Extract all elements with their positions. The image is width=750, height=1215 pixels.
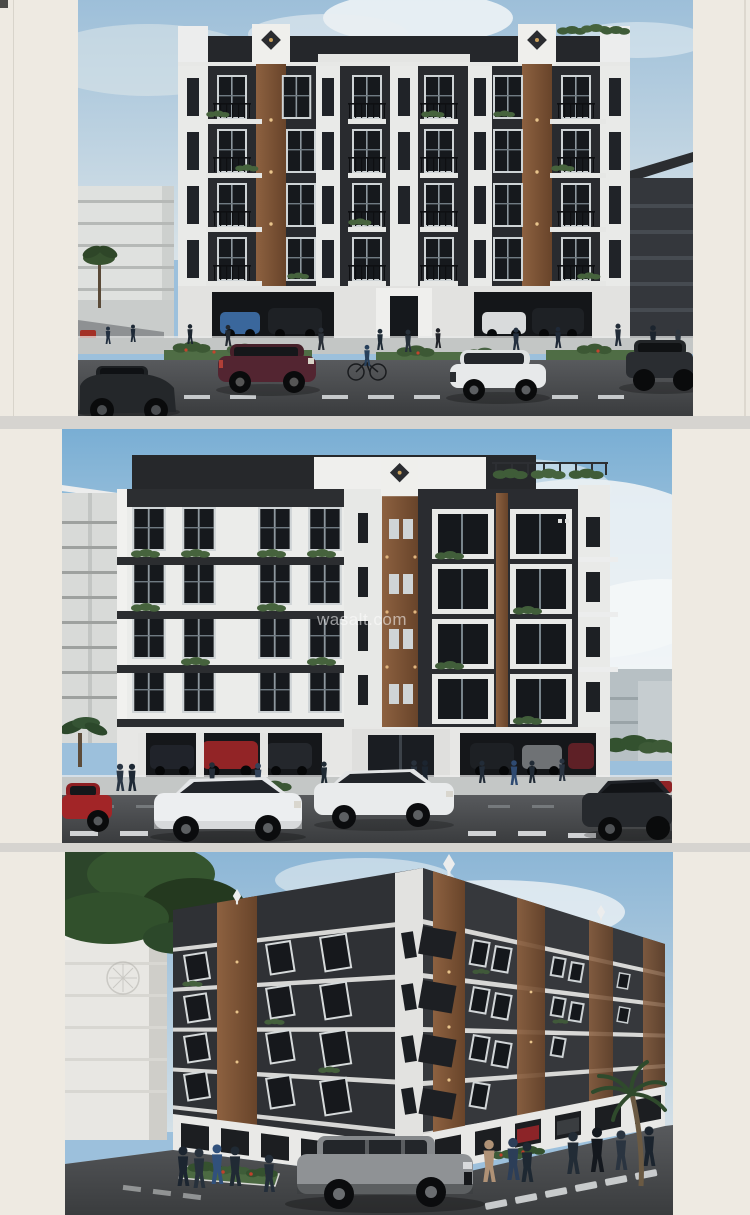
diamond-logo-icon: [381, 457, 418, 496]
scan-speck: [0, 0, 8, 8]
watermark: wasalt.com: [316, 610, 407, 629]
diamond-logo-icon: [252, 24, 290, 64]
background-building-left: [62, 485, 118, 767]
background-building-left: [78, 186, 174, 338]
diamond-logo-icon: [518, 24, 556, 64]
wood-column: [256, 34, 286, 286]
car-white-suv: [446, 350, 550, 404]
panel-separator: [0, 843, 750, 852]
listing-photo-corner-perspective: [65, 852, 673, 1215]
right-wing: [418, 485, 618, 731]
scan-edge-line-left: [13, 0, 14, 416]
left-wing: [117, 489, 347, 729]
background-buildings-right: [604, 669, 672, 761]
side-elevation-render: wasalt.com: [62, 429, 672, 843]
emblem-watermark: [107, 962, 139, 994]
scan-edge-line-right: [744, 0, 746, 416]
main-building: [178, 24, 630, 346]
wood-column: [522, 34, 552, 286]
listing-photo-front-elevation: [78, 0, 693, 416]
wood-column: [517, 898, 545, 1134]
center-tower: [344, 457, 418, 731]
background-building-white: [65, 930, 167, 1140]
corner-perspective-render: [65, 852, 673, 1215]
background-building-right: [626, 152, 693, 340]
listing-photo-side-elevation: wasalt.com: [62, 429, 672, 843]
front-elevation-render: [78, 0, 693, 416]
panel-separator: [0, 416, 750, 429]
